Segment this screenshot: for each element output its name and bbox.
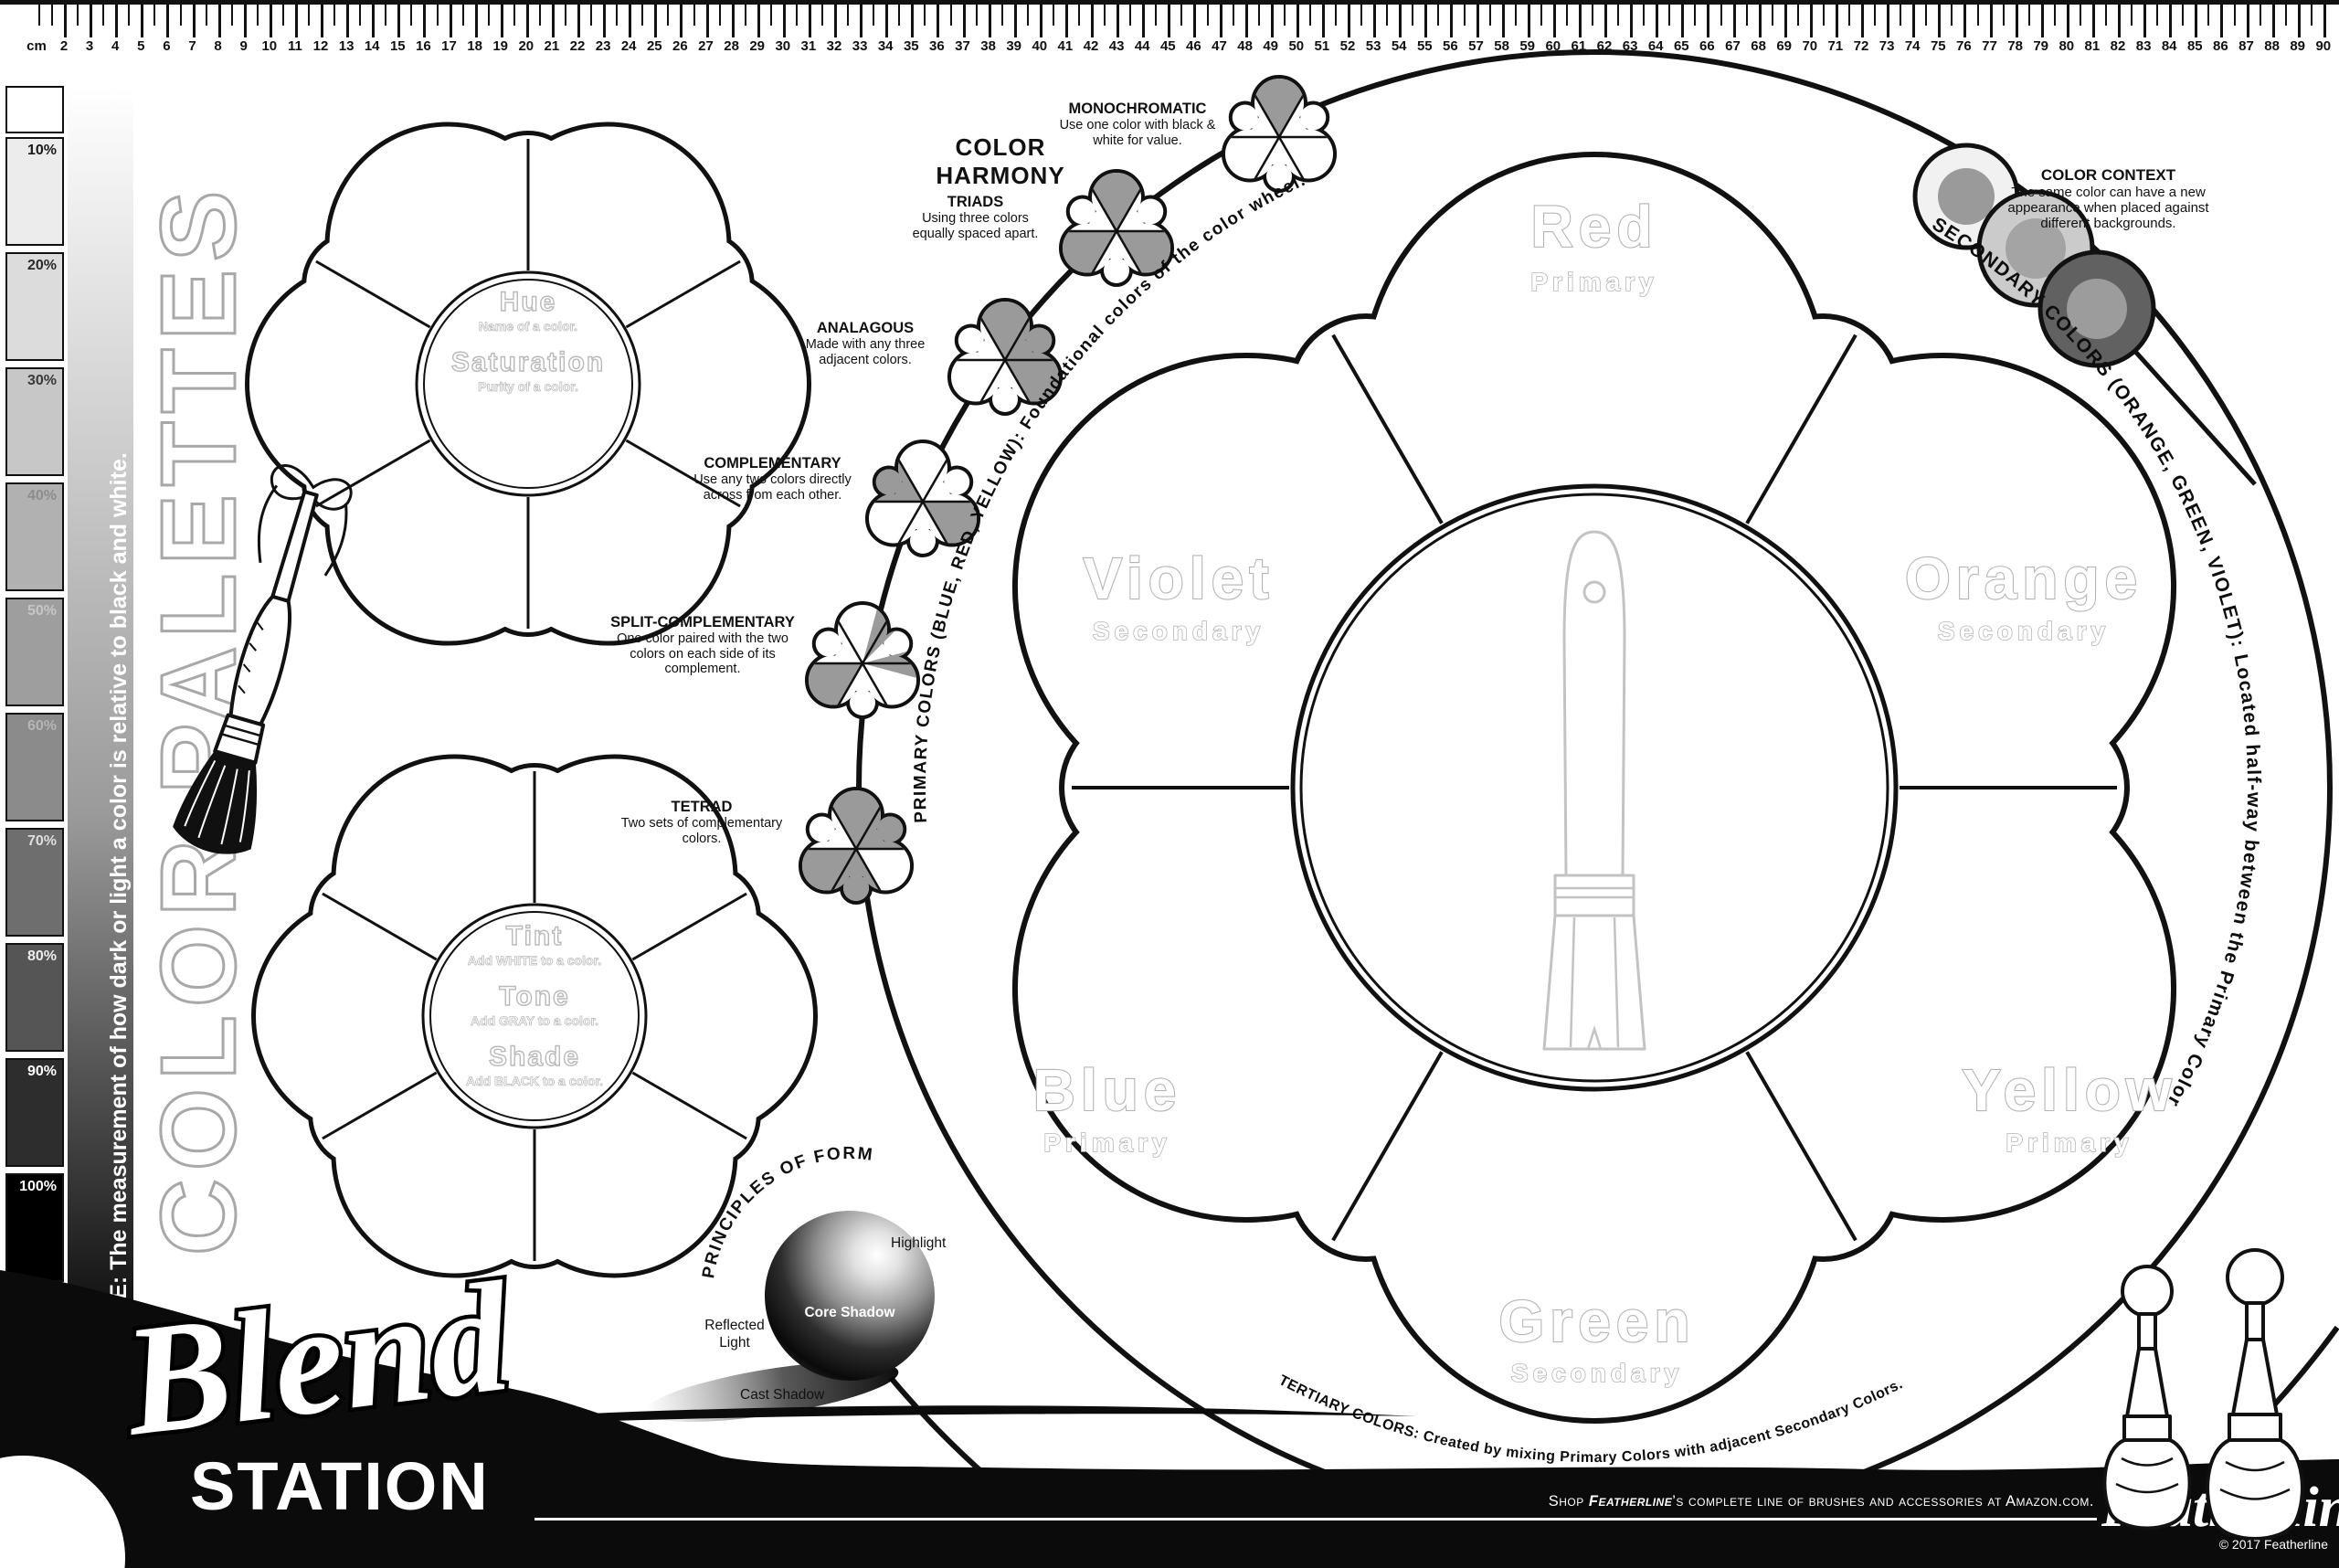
brush-streak xyxy=(498,1405,1416,1425)
palette-terms-top: Hue Name of a color. Saturation Purity o… xyxy=(391,287,665,408)
term-hue: Hue xyxy=(391,287,665,318)
wheel-segment-type-green: Secondary xyxy=(1511,1359,1683,1387)
context-swatch-core-1 xyxy=(1938,168,1995,225)
harmony-flower-tetrad xyxy=(778,771,934,927)
harmony-triads: TRIADS Using three colors equally spaced… xyxy=(900,194,1051,241)
footer-rule xyxy=(534,1518,2097,1520)
wheel-segment-violet: Violet xyxy=(1083,546,1274,611)
shop-tagline: Shop Featherline’s complete line of brus… xyxy=(1398,1493,2094,1510)
color-context: COLOR CONTEXT The same color can have a … xyxy=(2001,166,2216,231)
wheel-segment-yellow: Yellow xyxy=(1962,1057,2176,1123)
wheel-segment-orange: Orange xyxy=(1905,546,2143,611)
palette-terms-bottom: Tint Add WHITE to a color. Tone Add GRAY… xyxy=(397,921,672,1102)
harmony-flower-analagous xyxy=(927,282,1083,428)
wheel-segment-green: Green xyxy=(1499,1288,1696,1354)
label-core-shadow: Core Shadow xyxy=(802,1305,897,1322)
wheel-segment-type-violet: Secondary xyxy=(1093,617,1265,645)
harmony-analagous: ANALAGOUS Made with any three adjacent c… xyxy=(784,320,947,367)
label-reflected-light: Reflected Light xyxy=(690,1318,779,1351)
term-saturation: Saturation xyxy=(391,347,665,378)
wheel-segment-type-blue: Primary xyxy=(1043,1128,1170,1157)
term-tint: Tint xyxy=(397,921,672,952)
wheel-segment-type-red: Primary xyxy=(1530,268,1657,296)
harmony-split-complementary: SPLIT-COMPLEMENTARY One color paired wit… xyxy=(603,614,802,677)
term-tone: Tone xyxy=(397,981,672,1012)
harmony-tetrad: TETRAD Two sets of complementary colors. xyxy=(610,799,793,846)
round-brush-illustration-2 xyxy=(2207,1250,2302,1539)
harmony-monochromatic: MONOCHROMATIC Use one color with black &… xyxy=(1051,101,1224,148)
brand-name: Featherline xyxy=(1589,1493,1672,1510)
logo-block: STATION xyxy=(190,1447,490,1525)
blend-station-mat: cm23456789101112131415161718192021222324… xyxy=(0,0,2339,1568)
wheel-segment-red: Red xyxy=(1531,194,1658,260)
harmony-complementary: COMPLEMENTARY Use any two colors directl… xyxy=(683,455,862,503)
wheel-segment-blue: Blue xyxy=(1033,1057,1182,1123)
label-cast-shadow: Cast Shadow xyxy=(740,1387,824,1404)
label-highlight: Highlight xyxy=(891,1235,946,1253)
artwork: RedPrimaryOrangeSecondaryYellowPrimaryGr… xyxy=(0,0,2339,1568)
copyright: © 2017 Featherline xyxy=(2129,1537,2328,1552)
wheel-segment-type-orange: Secondary xyxy=(1938,617,2110,645)
wheel-segment-type-yellow: Primary xyxy=(2006,1128,2133,1157)
term-shade: Shade xyxy=(397,1042,672,1073)
